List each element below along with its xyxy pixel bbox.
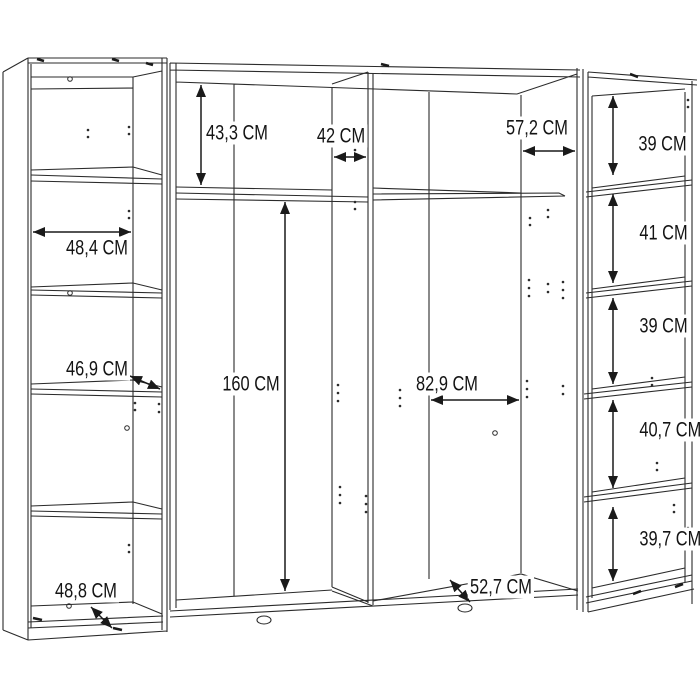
- dimension-label-48-8-cm: 48,8 CM: [53, 580, 120, 603]
- dimension-label-82-9-cm: 82,9 CM: [414, 373, 481, 396]
- center-divider-panel: [332, 72, 373, 606]
- dimension-label-48-4-cm: 48,4 CM: [64, 237, 131, 260]
- main-wardrobe-carcass: [170, 63, 583, 612]
- adjustable-foot: [257, 616, 271, 624]
- dimension-label-40-7-cm: 40,7 CM: [637, 419, 700, 442]
- dimension-label-57-2-cm: 57,2 CM: [504, 117, 571, 140]
- dimension-label-39-7-cm: 39,7 CM: [637, 528, 700, 551]
- left-shelf-tower: [3, 58, 167, 640]
- dimension-label-41-cm: 41 CM: [637, 222, 690, 245]
- dimension-label-160-cm: 160 CM: [220, 373, 282, 396]
- arrow-46-9: [130, 376, 160, 389]
- adjustable-foot: [458, 604, 472, 612]
- dimension-label-46-9-cm: 46,9 CM: [64, 358, 131, 381]
- dimension-label-52-7-cm: 52,7 CM: [468, 576, 535, 599]
- dimension-arrows: [33, 85, 613, 628]
- dimension-label-39-cm-top: 39 CM: [636, 133, 689, 156]
- wardrobe-dimension-diagram: 43,3 CM 42 CM 57,2 CM 39 CM 48,4 CM 41 C…: [0, 0, 700, 700]
- dimension-label-39-cm-mid: 39 CM: [637, 315, 690, 338]
- screw-holes: [67, 77, 498, 609]
- shelf-pin-holes: [87, 99, 690, 554]
- dimension-label-43-3-cm: 43,3 CM: [204, 122, 271, 145]
- dimension-label-42-cm: 42 CM: [315, 125, 368, 148]
